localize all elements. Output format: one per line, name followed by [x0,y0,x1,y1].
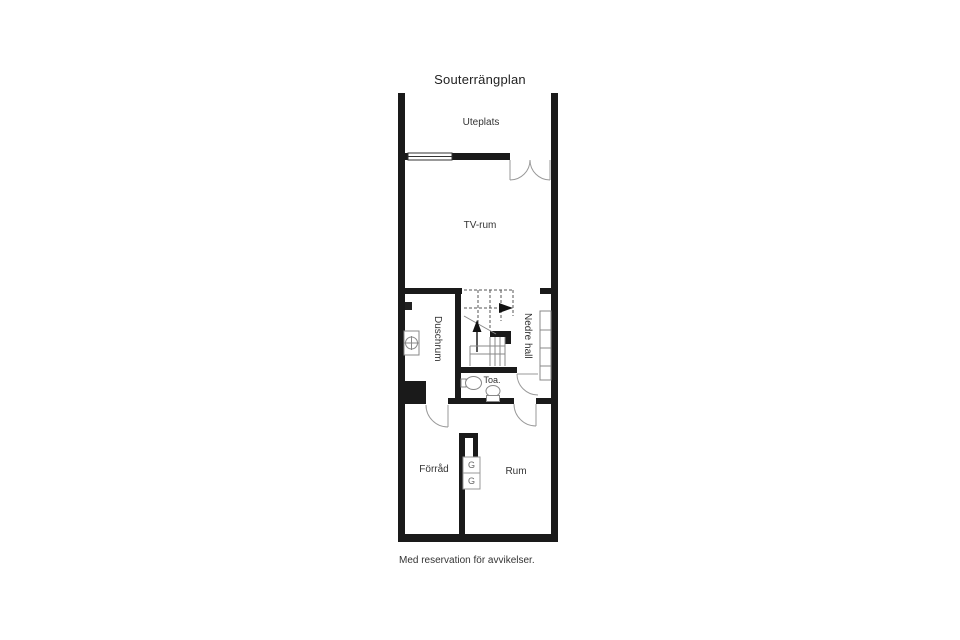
plan-linework [0,0,960,640]
interior-doors [426,374,538,427]
french-door-icon [510,160,550,180]
closet-label-g1: G [463,460,480,470]
door-forrad-icon [426,405,448,427]
room-label-uteplats: Uteplats [463,117,500,128]
staircase [464,290,513,366]
room-label-tv-rum: TV-rum [464,220,497,231]
disclaimer-text: Med reservation för avvikelser. [399,555,535,566]
room-label-toa: Toa. [483,375,500,385]
wardrobe-unit-icon [540,311,551,380]
floor-plan-canvas: Souterrängplan [0,0,960,640]
stair-treads [470,337,505,366]
room-label-forrad: Förråd [419,464,448,475]
window-icon [408,153,452,160]
stair-direction-arrow-right-icon [499,303,513,313]
room-label-rum: Rum [505,466,526,477]
shower-icon [404,331,419,355]
sink-icon [461,377,482,390]
valve-mark-icon [405,302,412,310]
door-toa-icon [517,374,538,395]
closet-label-g2: G [463,476,480,486]
room-label-nedre-hall: Nedre hall [522,313,533,359]
door-rum-icon [514,404,536,426]
toilet-icon [486,386,500,402]
room-label-duschrum: Duschrum [432,316,443,362]
